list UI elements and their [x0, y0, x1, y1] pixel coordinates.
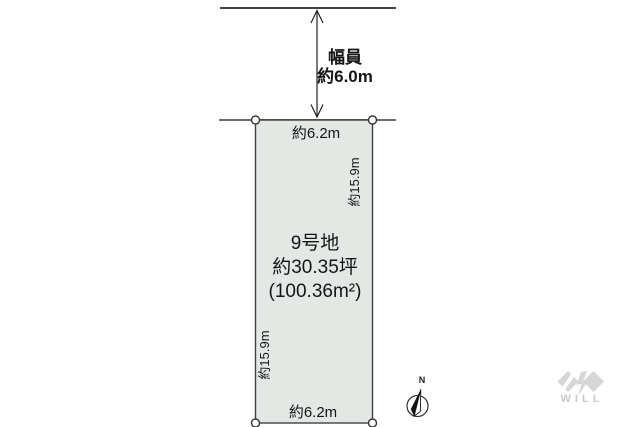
- road-width-label: 幅員 約6.0m: [300, 48, 390, 86]
- dimension-left: 約15.9m: [258, 325, 272, 385]
- road-width-title: 幅員: [300, 48, 390, 67]
- plot-area-tsubo: 約30.35坪: [230, 256, 400, 280]
- plot-area-m2: (100.36m²): [230, 280, 400, 304]
- road-width-value: 約6.0m: [300, 67, 390, 86]
- dimension-top: 約6.2m: [276, 126, 356, 141]
- dimension-right: 約15.9m: [348, 152, 362, 212]
- corner-marker-top-left: [252, 116, 260, 124]
- dimension-bottom: 約6.2m: [273, 405, 353, 420]
- corner-marker-bottom-left: [252, 419, 260, 427]
- plot-name: 9号地: [230, 232, 400, 256]
- plot-info: 9号地 約30.35坪 (100.36m²): [230, 232, 400, 304]
- will-logo-text: WILL: [558, 393, 606, 405]
- plot-layout-diagram: 幅員 約6.0m 約6.2m 約6.2m 約15.9m 約15.9m 9号地 約…: [0, 0, 640, 427]
- corner-marker-top-right: [369, 116, 377, 124]
- compass-north-label: N: [414, 375, 430, 385]
- compass-icon: [407, 388, 428, 417]
- corner-marker-bottom-right: [369, 419, 377, 427]
